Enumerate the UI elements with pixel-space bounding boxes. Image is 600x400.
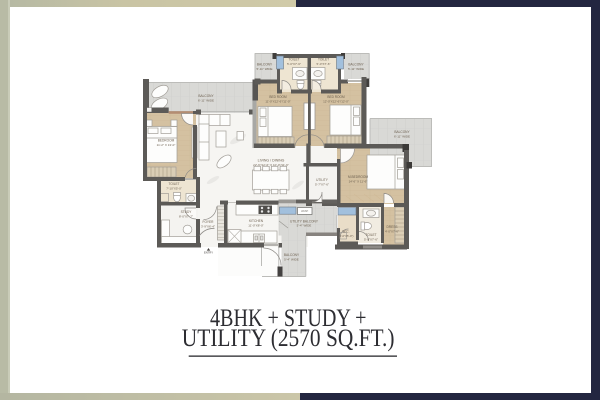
- svg-text:11'-0"X8'-0": 11'-0"X8'-0": [248, 223, 263, 227]
- svg-text:BALCONY: BALCONY: [257, 63, 273, 67]
- svg-text:TOILET: TOILET: [318, 58, 329, 62]
- svg-text:BALCONY: BALCONY: [198, 94, 214, 98]
- svg-text:W.C.: W.C.: [343, 230, 350, 234]
- svg-text:TOILET: TOILET: [168, 182, 179, 186]
- svg-text:BALCONY: BALCONY: [394, 130, 410, 134]
- svg-text:5'-7"X7'-6": 5'-7"X7'-6": [315, 182, 329, 186]
- svg-text:KITCHEN: KITCHEN: [249, 219, 264, 223]
- svg-text:4'-0"X7'-6": 4'-0"X7'-6": [385, 229, 399, 233]
- svg-text:UTILITY: UTILITY: [316, 178, 329, 182]
- svg-text:3'-9"X6'-4": 3'-9"X6'-4": [201, 224, 215, 228]
- svg-text:BEDROOM: BEDROOM: [158, 139, 175, 143]
- svg-text:WASH: WASH: [301, 210, 308, 213]
- svg-text:5'-0"X7'-6": 5'-0"X7'-6": [364, 237, 378, 241]
- svg-text:UTILITY BALCONY: UTILITY BALCONY: [290, 219, 319, 223]
- svg-text:BALCONY: BALCONY: [348, 63, 364, 67]
- svg-text:12'-0"X12'-6"/12'-0": 12'-0"X12'-6"/12'-0": [323, 99, 349, 103]
- svg-text:11'-2" X 13'-0": 11'-2" X 13'-0": [157, 143, 176, 147]
- svg-text:BALCONY: BALCONY: [284, 253, 300, 257]
- svg-text:M.BEDROOM: M.BEDROOM: [348, 175, 368, 179]
- svg-text:5'-0"X7'-6": 5'-0"X7'-6": [317, 62, 331, 66]
- svg-text:LIVING / DINING: LIVING / DINING: [258, 159, 285, 163]
- svg-text:5'-4" WIDE: 5'-4" WIDE: [297, 224, 312, 228]
- svg-text:ENTRY: ENTRY: [204, 250, 213, 254]
- svg-text:TOILET: TOILET: [288, 58, 299, 62]
- svg-text:BED ROOM: BED ROOM: [269, 95, 287, 99]
- svg-text:TOILET: TOILET: [365, 233, 376, 237]
- svg-text:11'-0"X12'-6"/11'-0": 11'-0"X12'-6"/11'-0": [265, 99, 290, 103]
- svg-text:5'-0"X7'-6": 5'-0"X7'-6": [287, 62, 301, 66]
- svg-text:BED ROOM: BED ROOM: [327, 95, 345, 99]
- svg-text:FOYER: FOYER: [203, 220, 215, 224]
- svg-text:7'-10"X5'-0": 7'-10"X5'-0": [166, 186, 182, 190]
- svg-text:14'-6" X 11'-6": 14'-6" X 11'-6": [349, 179, 368, 183]
- svg-text:22'-6"/12'-6" X 10'-0"/11'-6": 22'-6"/12'-6" X 10'-0"/11'-6": [253, 163, 289, 167]
- svg-text:DRESS: DRESS: [387, 225, 398, 229]
- svg-text:UTILITY (2570 SQ.FT.): UTILITY (2570 SQ.FT.): [182, 325, 395, 352]
- svg-text:6'-11" WIDE: 6'-11" WIDE: [394, 134, 410, 138]
- svg-text:5'-11" WIDE: 5'-11" WIDE: [348, 67, 364, 71]
- svg-text:8'-0"X7'-7": 8'-0"X7'-7": [179, 214, 193, 218]
- svg-text:STUDY: STUDY: [181, 210, 193, 214]
- svg-text:6'-11" WIDE: 6'-11" WIDE: [198, 98, 214, 102]
- svg-text:(3'-0"X5'-0"): (3'-0"X5'-0"): [339, 234, 354, 238]
- svg-text:5'-11" WIDE: 5'-11" WIDE: [256, 67, 272, 71]
- svg-text:5'-4" WIDE: 5'-4" WIDE: [284, 257, 299, 261]
